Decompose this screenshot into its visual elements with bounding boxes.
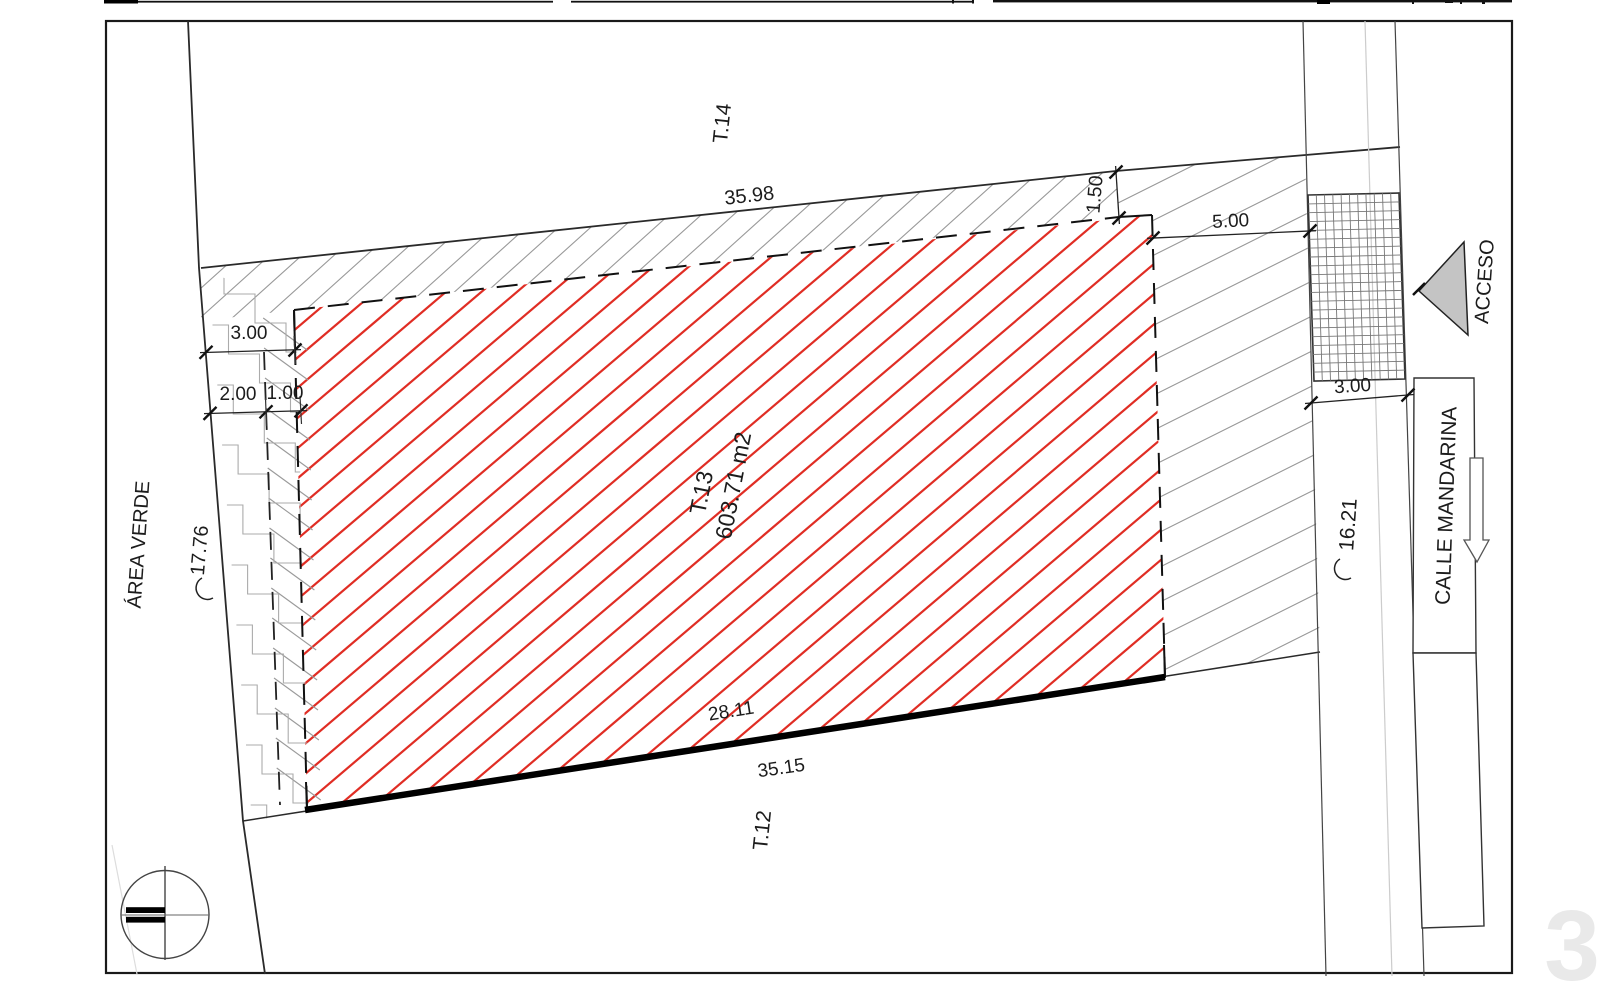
svg-text:3.00: 3.00 [1333,375,1371,399]
svg-text:3.00: 3.00 [231,323,268,344]
svg-text:17.76: 17.76 [187,525,213,577]
svg-text:1.50: 1.50 [1082,174,1107,214]
svg-text:T.14: T.14 [709,102,736,144]
svg-text:3: 3 [1544,890,1600,1000]
svg-text:1.00: 1.00 [267,383,304,404]
svg-text:16.21: 16.21 [1335,498,1362,552]
svg-text:T.12: T.12 [749,809,776,851]
svg-text:2.00: 2.00 [220,384,257,405]
svg-text:5.00: 5.00 [1212,210,1250,233]
